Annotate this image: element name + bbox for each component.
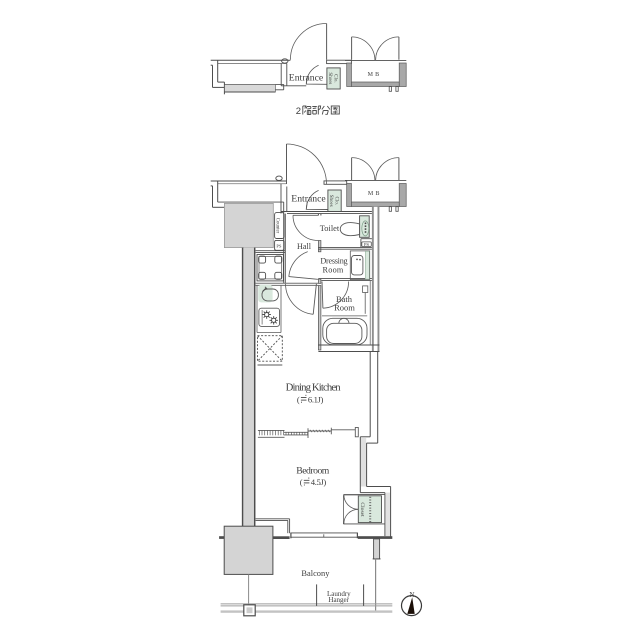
svg-text:Room: Room	[334, 303, 355, 313]
svg-text:Bedroom: Bedroom	[296, 466, 330, 477]
svg-text:2: 2	[296, 106, 301, 117]
svg-text:Shoes: Shoes	[328, 195, 333, 207]
svg-text:Closet: Closet	[359, 502, 365, 517]
svg-text:PS: PS	[364, 242, 370, 247]
svg-text:PS: PS	[276, 243, 282, 248]
svg-text:Balcony: Balcony	[301, 569, 330, 578]
svg-text:Room: Room	[323, 266, 344, 275]
svg-text:MB: MB	[368, 72, 382, 78]
svg-text:Dining Kitchen: Dining Kitchen	[286, 381, 342, 393]
svg-text:N: N	[409, 591, 415, 599]
svg-text:(: (	[300, 477, 303, 487]
svg-text:6.1J): 6.1J)	[308, 394, 324, 404]
svg-text:(: (	[297, 394, 300, 404]
svg-text:Shoes: Shoes	[327, 72, 332, 84]
svg-text:Counter: Counter	[275, 218, 280, 234]
svg-text:Dressing: Dressing	[320, 257, 347, 266]
svg-text:Hall: Hall	[297, 242, 312, 251]
svg-text:4.5J): 4.5J)	[311, 477, 327, 487]
svg-text:Toilet: Toilet	[320, 224, 340, 233]
svg-text:MB: MB	[368, 191, 382, 197]
svg-text:Clo.: Clo.	[333, 74, 338, 82]
svg-text:Clo.: Clo.	[334, 196, 339, 204]
svg-text:Entrance: Entrance	[291, 193, 325, 204]
svg-text:Entrance: Entrance	[289, 72, 323, 83]
svg-text:Hanger: Hanger	[328, 596, 349, 604]
